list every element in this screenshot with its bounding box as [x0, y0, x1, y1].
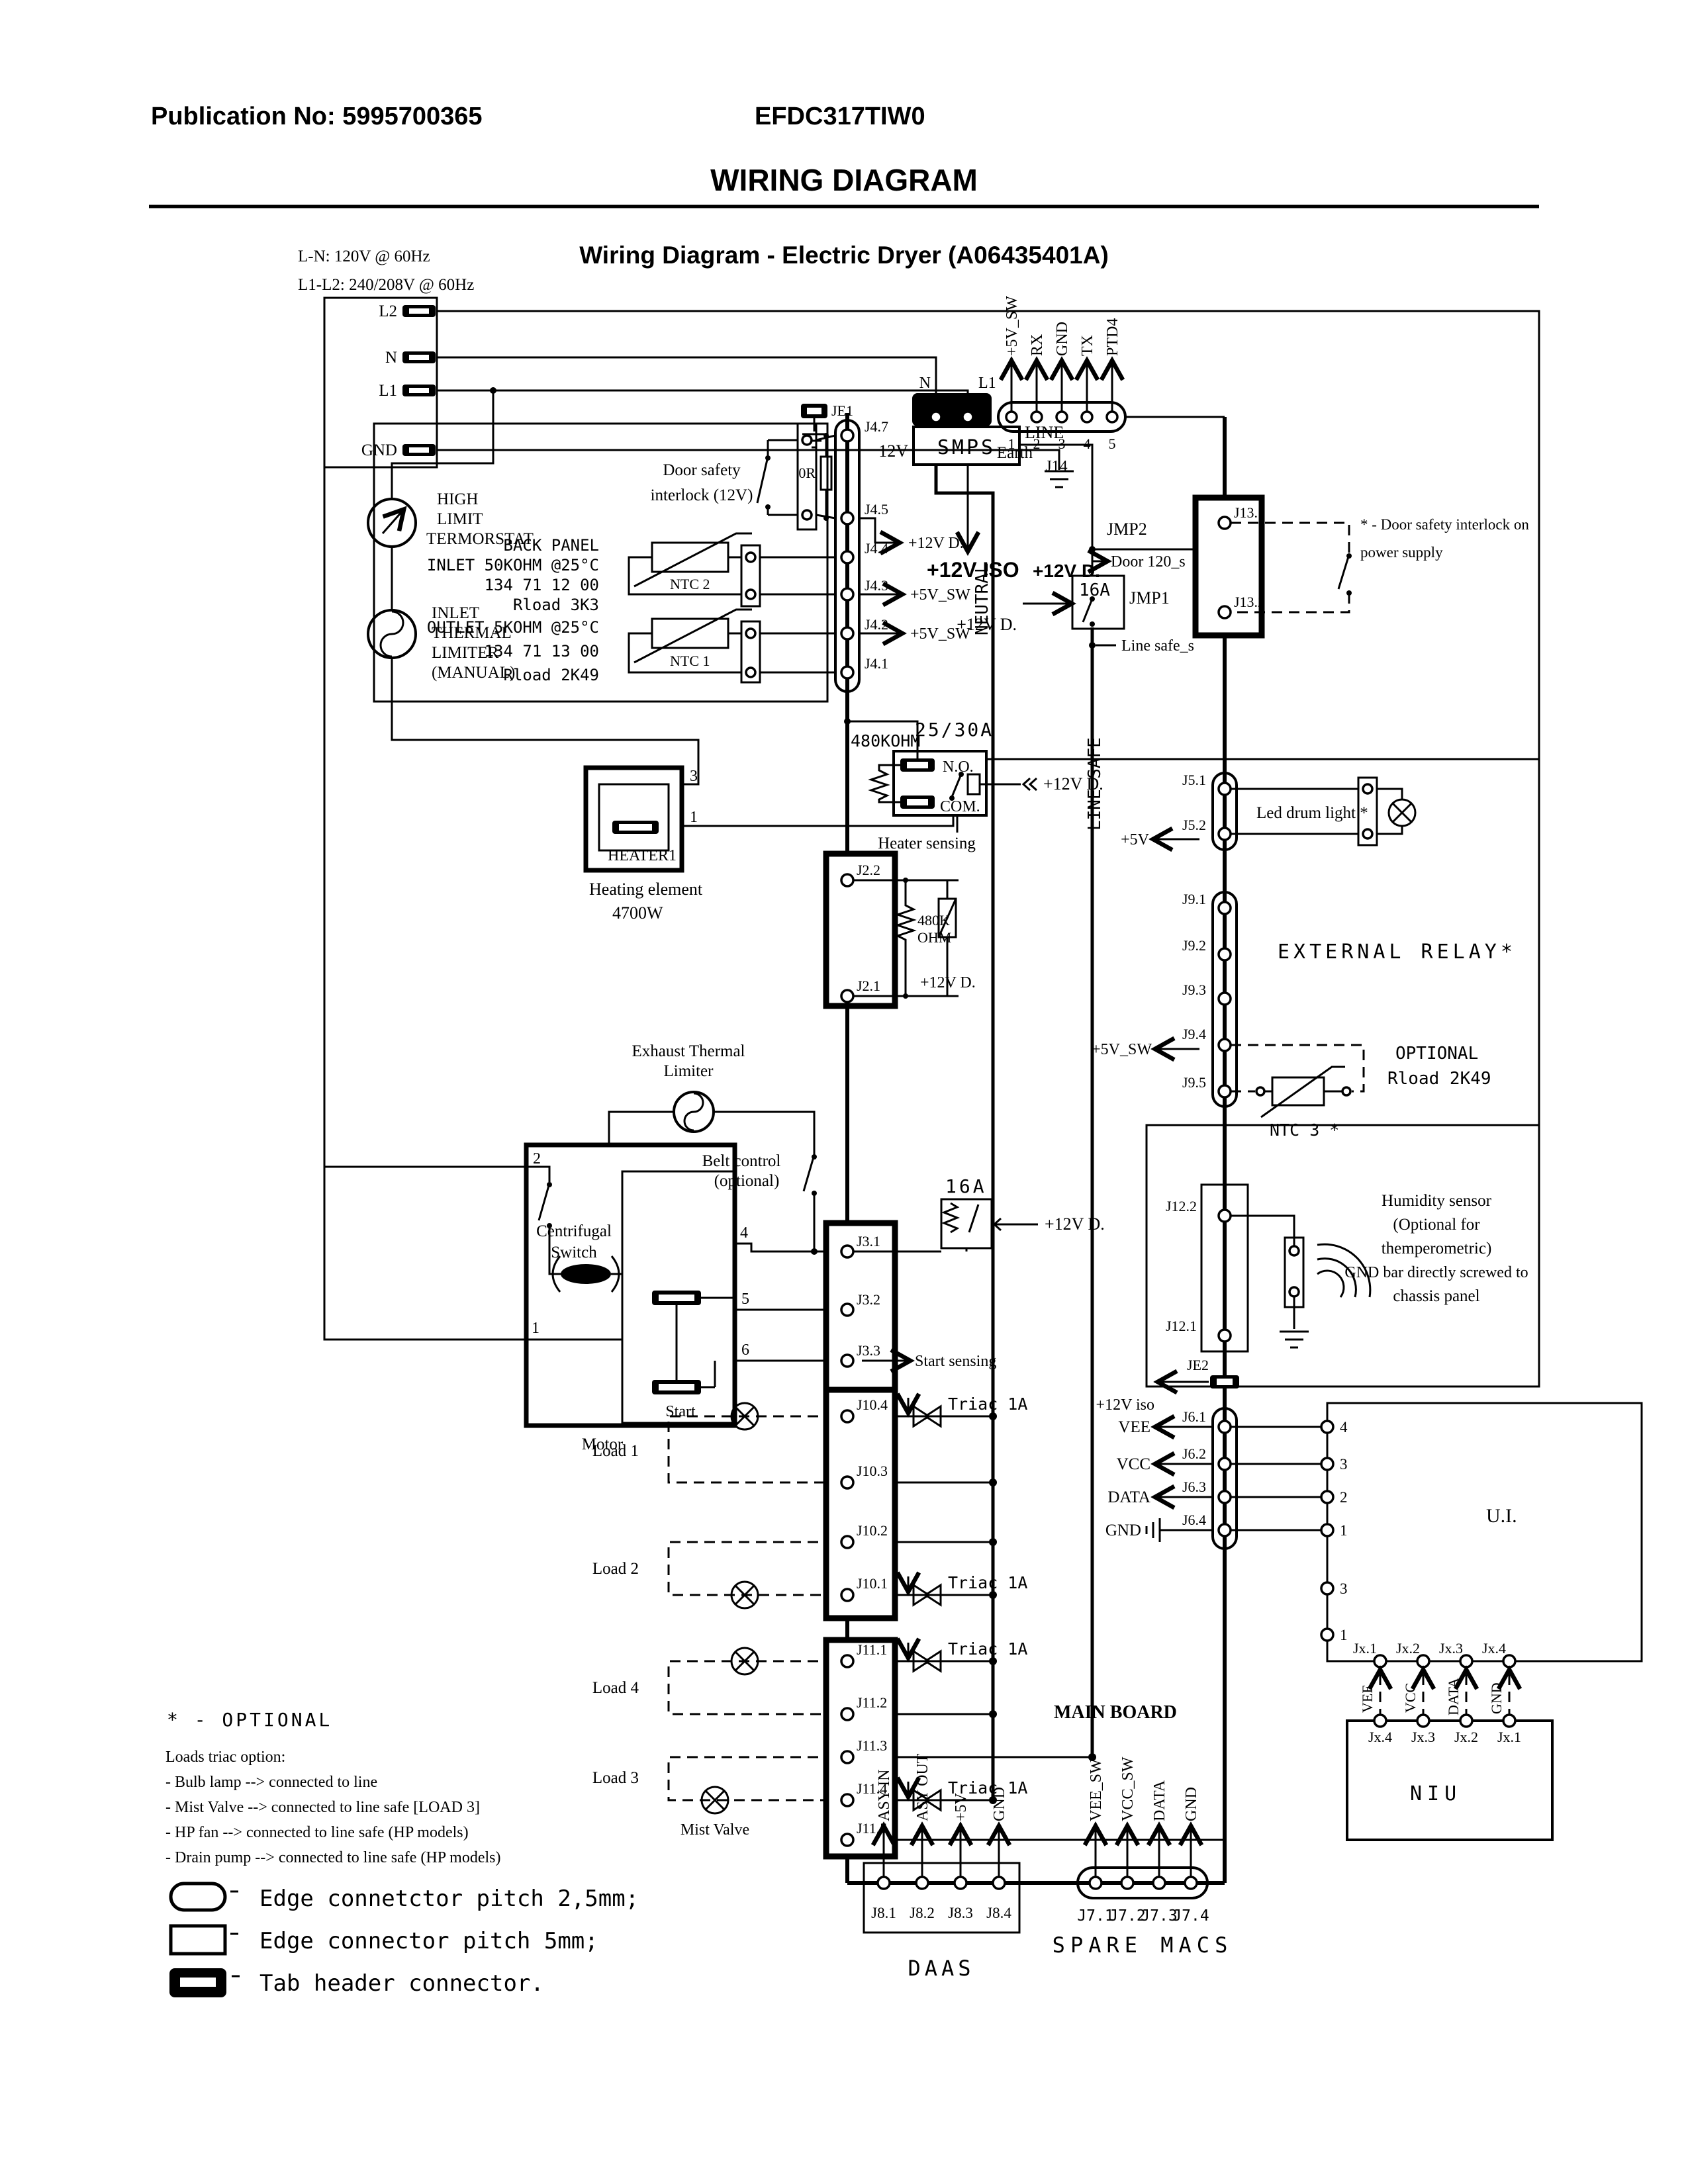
relay-com-label: COM. [940, 798, 980, 815]
belt-switch-blade [804, 1155, 814, 1191]
rating-ln: L-N: 120V @ 60Hz [298, 248, 430, 265]
wire-n [437, 357, 936, 393]
relay-12vd-chevrons [1023, 778, 1037, 790]
j3-connector: J3.1 J3.2 J3.3 Start sensing 16A +12V D. [826, 1175, 1105, 1403]
j9-p1: J9.1 [1182, 891, 1206, 907]
motor-pin4: 4 [740, 1224, 748, 1242]
triac3-label: Triac 1A [948, 1639, 1027, 1659]
back-panel-3: 134 71 12 00 [485, 576, 599, 594]
heater-pin1: 1 [690, 809, 698, 826]
legend-line1: Edge connetctor pitch 2,5mm; [259, 1886, 639, 1912]
tab-header-connector-icon [169, 1968, 240, 1997]
r0-resistor [821, 457, 831, 490]
j9-p4: J9.4 [1182, 1026, 1206, 1042]
bus-neutral [936, 465, 993, 1800]
j5-p1-label: J5.1 [1182, 772, 1206, 788]
terminal-n-label: N [385, 349, 397, 367]
relay-12vd-label: +12V D. [1043, 774, 1103, 794]
j14-sig4: TX [1079, 335, 1096, 356]
wire-heater-com [682, 815, 953, 826]
heating-element-label: Heating element [589, 880, 703, 899]
belt-label1: Belt control [702, 1152, 781, 1170]
j3-16a-box [941, 1199, 992, 1248]
j4-pin7: J4.7 [865, 418, 888, 435]
wire-motor-return1 [324, 467, 526, 1340]
j6-p3-label: J6.3 [1182, 1479, 1206, 1495]
j3-blade [969, 1205, 978, 1232]
j8-sig2: ASY OUT [914, 1753, 931, 1821]
j2-480k: 480K [917, 912, 950, 929]
j8-connector [864, 1863, 1019, 1933]
j8-sig4: GND [991, 1787, 1008, 1821]
inlet-4: (MANUAL) [432, 664, 515, 682]
rating-l1l2: L1-L2: 240/208V @ 60Hz [298, 276, 474, 294]
j4-12vd-label: +12V D. [908, 535, 964, 552]
terminal-l1-label: L1 [379, 382, 397, 400]
relay-amp: 25/30A [915, 719, 994, 741]
j11-p3: J11.3 [857, 1737, 887, 1754]
ui-pin1: 1 [1340, 1522, 1348, 1539]
motor-pin1: 1 [532, 1320, 539, 1337]
terminal-l2-label: L2 [379, 302, 397, 320]
j2-ohm: OHM [917, 929, 951, 946]
j2-connector: J2.2 J2.1 480K OHM +12V D. [826, 854, 976, 1006]
diagram-canvas: Publication No: 5995700365 EFDC317TIW0 W… [0, 0, 1688, 2184]
main-board-label: MAIN BOARD [1054, 1702, 1177, 1723]
j5-p2-label: J5.2 [1182, 817, 1206, 833]
rload-2k49-label: Rload 2K49 [1387, 1069, 1491, 1089]
notes-block: * - OPTIONAL Loads triac option: - Bulb … [165, 1709, 501, 1866]
j14-sig2: RX [1029, 334, 1046, 356]
j12-p1-label: J12.1 [1166, 1318, 1197, 1334]
je2-label: JE2 [1187, 1357, 1209, 1373]
j8-sig3: +5V [953, 1792, 970, 1821]
back-panel-4: Rload 3K3 [513, 596, 599, 614]
j10-p3: J10.3 [857, 1463, 888, 1479]
triac-icon-2 [908, 1576, 941, 1605]
j6-ground-icon [1147, 1518, 1160, 1542]
inlet-limiter-icon [368, 610, 416, 658]
j14-pin1: 1 [1008, 435, 1015, 452]
j9-p3: J9.3 [1182, 981, 1206, 998]
j14-sig5: PTD4 [1104, 318, 1121, 356]
heater-relay: 480KOHM 25/30A N.O. COM. +12V D. Heater … [844, 718, 1103, 852]
wire-pin2-switch [526, 1167, 549, 1182]
niu-jx4: Jx.4 [1368, 1729, 1392, 1745]
diagram-subtitle: Wiring Diagram - Electric Dryer (A064354… [579, 242, 1109, 269]
j8-sig1: ASY IN [876, 1770, 893, 1821]
j7-sig1: VEE_SW [1088, 1758, 1105, 1821]
ui-pin3: 3 [1340, 1456, 1348, 1473]
ui-jx2: Jx.2 [1396, 1640, 1420, 1657]
triac-icon-3 [908, 1643, 941, 1671]
jmp1-label: JMP1 [1129, 588, 1170, 608]
humidity-note3: themperometric) [1382, 1240, 1492, 1257]
j1-l1-label: L1 [978, 375, 996, 392]
spare-macs-block: VEE_SW VCC_SW DATA GND J7.1 J7.2 J7.3 J7… [1053, 1756, 1233, 1958]
door-interlock-blade [757, 457, 768, 503]
heater-pin3: 3 [690, 768, 698, 785]
start-label: Start [665, 1403, 696, 1420]
jmp2-label: JMP2 [1107, 520, 1147, 539]
relay-blade [952, 774, 961, 797]
j4-pin1: J4.1 [865, 655, 888, 672]
j10-p4: J10.4 [857, 1396, 888, 1413]
publication-no: Publication No: 5995700365 [151, 103, 483, 130]
edge-connector-2-5mm-icon [171, 1884, 238, 1910]
j10-p2: J10.2 [857, 1522, 888, 1539]
door120-label: Door 120_s [1111, 553, 1186, 570]
j14-pin5: 5 [1109, 435, 1116, 452]
j6-p2-label: J6.2 [1182, 1445, 1206, 1462]
j13-note2: power supply [1360, 544, 1443, 561]
terminal-l1: L1 [379, 382, 436, 400]
load4-lamp-icon [731, 1648, 758, 1674]
ui-pin2: 2 [1340, 1489, 1348, 1506]
door-safety-label2: interlock (12V) [651, 486, 753, 504]
exhaust-limiter-icon [674, 1092, 714, 1132]
model-no: EFDC317TIW0 [755, 103, 925, 130]
motor-pin5: 5 [741, 1291, 749, 1308]
triac-icon-1 [908, 1398, 941, 1426]
j9-connector: J9.1 J9.2 J9.3 J9.4 J9.5 EXTERNAL RELAY*… [1092, 891, 1517, 1140]
wiring-diagram-page: Publication No: 5995700365 EFDC317TIW0 W… [0, 0, 1688, 2184]
j3-p3-label: J3.3 [857, 1342, 880, 1359]
triac1-label: Triac 1A [948, 1394, 1027, 1414]
j8-p4: J8.4 [986, 1905, 1011, 1921]
ntc3-label: NTC 3 * [1270, 1120, 1339, 1140]
header: Publication No: 5995700365 EFDC317TIW0 W… [149, 103, 1539, 269]
je1-label: JE1 [831, 402, 853, 419]
j13-connector: J13.1 J13.2 * - Door safety interlock on… [1196, 498, 1529, 635]
inlet-3: LIMITER [432, 644, 499, 662]
optional-label: OPTIONAL [1395, 1044, 1478, 1064]
niu-jx2: Jx.2 [1454, 1729, 1478, 1745]
ntc1-label: NTC 1 [670, 653, 710, 669]
j14-pin3: 3 [1058, 435, 1066, 452]
load2-lamp-icon [731, 1582, 758, 1608]
motor-icon [553, 1256, 619, 1292]
j6-p4-label: J6.4 [1182, 1512, 1206, 1528]
heater-sensing-label: Heater sensing [878, 835, 976, 852]
motor-block: Exhaust Thermal Limiter Belt control (op… [526, 1042, 835, 1453]
j9-5vsw-label: +5V_SW [1092, 1041, 1152, 1058]
terminal-gnd: GND [361, 441, 436, 459]
j6-vee-label: VEE [1118, 1418, 1150, 1436]
optional-note: * - OPTIONAL [167, 1709, 332, 1731]
edge-connector-5mm-icon [171, 1926, 238, 1954]
triac2-label: Triac 1A [948, 1573, 1027, 1592]
j13-note1: * - Door safety interlock on [1360, 516, 1529, 533]
daas-block: ASY IN ASY OUT +5V GND J8.1 J8.2 J8.3 J8… [864, 1753, 1019, 1981]
load4-label: Load 4 [592, 1679, 639, 1697]
v12iso-label: +12V ISO [927, 558, 1019, 582]
j14-sig3: GND [1054, 322, 1071, 356]
loads-triac-item4: - Drain pump --> connected to line safe … [165, 1849, 501, 1866]
external-relay-label: EXTERNAL RELAY* [1278, 940, 1517, 964]
j4-pin3: J4.3 [865, 577, 888, 594]
j11-p1: J11.1 [857, 1641, 887, 1658]
j14-pins [1006, 363, 1117, 422]
loads-triac-item2: - Mist Valve --> connected to line safe … [165, 1799, 480, 1816]
humidity-note1: Humidity sensor [1382, 1192, 1492, 1210]
niu-sig-vcc: VCC [1402, 1683, 1419, 1713]
j1-n-label: N [919, 375, 931, 392]
wire-exhaust-left [609, 1112, 674, 1145]
spare-macs-label: SPARE MACS [1053, 1933, 1233, 1958]
mist-valve-label: Mist Valve [680, 1821, 749, 1839]
niu-jx3: Jx.3 [1411, 1729, 1435, 1745]
exhaust-label1: Exhaust Thermal [632, 1042, 745, 1060]
motor-pin6: 6 [741, 1342, 749, 1359]
outlet-2: 134 71 13 00 [485, 642, 599, 660]
j10-p1: J10.1 [857, 1575, 888, 1592]
j2-p2-label: J2.2 [857, 862, 880, 878]
loads-triac-item3: - HP fan --> connected to line safe (HP … [165, 1824, 469, 1841]
humidity-note4: GND bar directly screwed to [1344, 1264, 1528, 1281]
ui-jx1: Jx.1 [1353, 1640, 1377, 1657]
j13-p1-label: J13.1 [1234, 504, 1265, 521]
page-title: WIRING DIAGRAM [710, 163, 978, 197]
j5-connector: J5.1 J5.2 +5V Led drum light * [1121, 772, 1415, 850]
j2-12vd: +12V D. [920, 974, 976, 991]
smps-12v-label: 12V [878, 441, 908, 461]
terminal-l2: L2 [379, 302, 436, 320]
wire-exhaust-right [714, 1112, 814, 1155]
ui-box [1327, 1403, 1642, 1661]
v12iso-lc-label: +12V iso [1096, 1396, 1154, 1414]
j14-pin2: 2 [1033, 435, 1041, 452]
niu-jx1: Jx.1 [1497, 1729, 1521, 1745]
heater1-label: HEATER1 [608, 847, 677, 864]
motor-pin2: 2 [533, 1150, 541, 1167]
load1-label: Load 1 [592, 1442, 639, 1460]
j5-5v-label: +5V [1121, 831, 1150, 848]
inlet-2: THERMAL [432, 624, 512, 642]
j7-sig2: VCC_SW [1119, 1756, 1137, 1821]
j2-resistor-icon [898, 880, 914, 996]
j4-pin5: J4.5 [865, 501, 888, 518]
relay-coil-icon [900, 758, 935, 809]
legend-line3: Tab header connector. [259, 1970, 544, 1997]
centrifugal-blade [539, 1183, 549, 1220]
load3-label: Load 3 [592, 1769, 639, 1787]
thermostat-block: HIGH LIMIT TERMORSTAT INLET THERMAL LIMI… [368, 490, 698, 784]
j6-ui-niu: J6.1 J6.2 J6.3 J6.4 VEE VCC DATA GND 4 3… [1105, 1403, 1642, 1840]
start-winding-icon [652, 1291, 735, 1394]
j9-p2: J9.2 [1182, 937, 1206, 954]
high-limit-3: TERMORSTAT [426, 530, 534, 548]
humidity-note2: (Optional for [1393, 1216, 1480, 1234]
niu-sig-vee: VEE [1359, 1684, 1376, 1713]
ui-jx4: Jx.4 [1482, 1640, 1506, 1657]
j6-p1-label: J6.1 [1182, 1408, 1206, 1425]
ntc3-thermistor-icon [1261, 1067, 1345, 1117]
smps-label: SMPS [937, 436, 996, 459]
relay-no-label: N.O. [943, 758, 974, 776]
j14-label: J14 [1045, 458, 1067, 475]
j11-p2: J11.2 [857, 1694, 887, 1711]
high-limit-2: LIMIT [437, 510, 483, 528]
j4-pin2: J4.2 [865, 616, 888, 633]
terminal-n: N [385, 349, 436, 367]
door-safety-label1: Door safety [663, 461, 741, 479]
lamp-icon [1389, 799, 1415, 826]
j4-12vd-tap [859, 518, 898, 543]
wire-belt-pin4 [735, 1244, 814, 1251]
motor-outer-box [526, 1145, 735, 1426]
daas-label: DAAS [908, 1956, 974, 1981]
high-limit-1: HIGH [437, 490, 479, 508]
j9-p5: J9.5 [1182, 1074, 1206, 1091]
high-limit-thermostat-icon [368, 499, 416, 547]
ui-lower1: 1 [1340, 1627, 1348, 1643]
j1-tab-connector [912, 393, 992, 426]
led-drum-label: Led drum light * [1256, 804, 1368, 822]
j3-p1-label: J3.1 [857, 1233, 880, 1250]
humidity-note5: chassis panel [1393, 1287, 1479, 1305]
j3-16a-label: 16A [945, 1175, 987, 1197]
j13-p2-label: J13.2 [1234, 594, 1265, 610]
v12d-label-smps: +12V D. [1033, 561, 1100, 581]
relay-sense-element [968, 774, 980, 794]
niu-sig-data: DATA [1445, 1678, 1462, 1715]
humidity-block: J12.2 J12.1 JE2 +12V iso Humidity sensor… [1096, 1125, 1539, 1414]
terminal-gnd-label: GND [361, 441, 397, 459]
j4-5vsw-label1: +5V_SW [910, 586, 970, 604]
jmp1-blade [1083, 599, 1092, 622]
j7-p4: J7.4 [1172, 1907, 1209, 1925]
j12-p2-label: J12.2 [1166, 1198, 1197, 1214]
j1-pin1-label: J1.1 [927, 398, 945, 410]
j3-resistor [944, 1203, 957, 1232]
ui-jx3: Jx.3 [1439, 1640, 1463, 1657]
ui-lower3: 3 [1340, 1580, 1348, 1597]
j1-pin2-label: J1.2 [959, 398, 977, 410]
niu-label: NIU [1410, 1782, 1462, 1805]
j3-12vd-label: +12V D. [1045, 1214, 1105, 1234]
j14-pin4: 4 [1084, 435, 1091, 452]
j6-data-label: DATA [1107, 1488, 1150, 1506]
j3-p2-label: J3.2 [857, 1291, 880, 1308]
j7-sig3: DATA [1151, 1780, 1168, 1821]
j4-5vsw-label2: +5V_SW [910, 625, 970, 643]
j8-p1: J8.1 [871, 1905, 896, 1921]
j2-p1-label: J2.1 [857, 978, 880, 994]
exhaust-label2: Limiter [664, 1062, 714, 1080]
j6-gnd-label: GND [1105, 1522, 1141, 1539]
r0-label: 0R [798, 465, 816, 481]
ui-label: U.I. [1486, 1505, 1517, 1527]
outlet-3: Rload 2K49 [504, 666, 600, 684]
j7-sig4: GND [1183, 1787, 1200, 1821]
ui-pin4: 4 [1340, 1419, 1348, 1435]
wire-l1 [437, 390, 968, 393]
back-panel-2: INLET 50KOHM @25°C [427, 556, 599, 574]
loads-triac-title: Loads triac option: [165, 1749, 285, 1766]
niu-sig-gnd: GND [1488, 1682, 1505, 1714]
relay-480k: 480KOHM [851, 731, 920, 751]
ntc2-label: NTC 2 [670, 576, 710, 592]
line-safe-s-label: Line safe_s [1121, 637, 1194, 655]
inlet-1: INLET [432, 604, 479, 622]
heater-watts: 4700W [612, 903, 663, 923]
start-sensing-label: Start sensing [915, 1353, 996, 1370]
j11-p5: J11.5 [857, 1820, 887, 1837]
j6-vcc-label: VCC [1117, 1455, 1150, 1473]
j13-switch-blade [1338, 555, 1349, 589]
relay-resistor-icon [871, 765, 900, 802]
legend-line2: Edge connector pitch 5mm; [259, 1928, 598, 1954]
chassis-ground-icon [1280, 1332, 1309, 1347]
legend: Edge connetctor pitch 2,5mm; Edge connec… [169, 1884, 639, 1997]
loads-triac-item1: - Bulb lamp --> connected to line [165, 1774, 377, 1791]
j14-sig1: +5V_SW [1004, 296, 1021, 356]
jmp1-16a: 16A [1079, 580, 1110, 600]
load2-label: Load 2 [592, 1560, 639, 1578]
j8-p2: J8.2 [910, 1905, 935, 1921]
belt-label2: (optional) [714, 1172, 780, 1190]
j8-p3: J8.3 [948, 1905, 973, 1921]
